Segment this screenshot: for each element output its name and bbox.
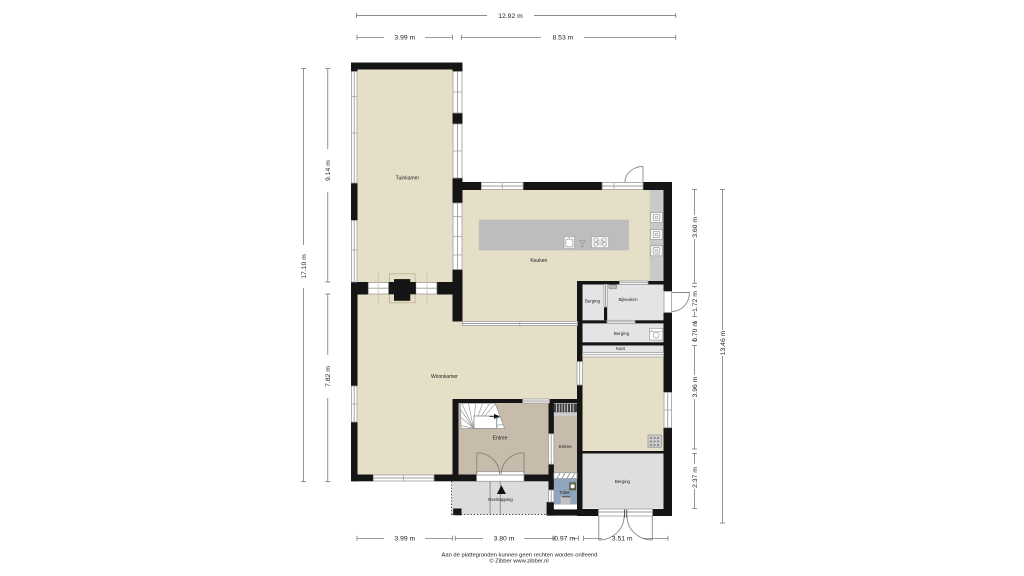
svg-text:Berging: Berging xyxy=(615,479,631,484)
svg-text:8.53 m: 8.53 m xyxy=(553,35,574,42)
svg-text:3.60 m: 3.60 m xyxy=(692,217,699,238)
svg-text:Berging: Berging xyxy=(585,299,601,304)
svg-text:3.51 m: 3.51 m xyxy=(612,536,633,543)
svg-text:7.82 m: 7.82 m xyxy=(325,366,332,387)
svg-text:2.37 m: 2.37 m xyxy=(692,467,699,488)
svg-text:3.99 m: 3.99 m xyxy=(394,35,415,42)
svg-text:Aan de plattegronden kunnen ge: Aan de plattegronden kunnen geen rechten… xyxy=(442,552,598,558)
svg-text:0.97 m: 0.97 m xyxy=(554,536,575,543)
svg-text:© Zibber www.zibber.nl: © Zibber www.zibber.nl xyxy=(489,558,548,565)
svg-text:Woonkamer: Woonkamer xyxy=(431,374,458,380)
svg-text:1.72 m: 1.72 m xyxy=(692,291,699,312)
svg-text:13.46 m: 13.46 m xyxy=(720,330,727,355)
svg-text:3.99 m: 3.99 m xyxy=(394,536,415,543)
svg-text:3.96 m: 3.96 m xyxy=(692,376,699,397)
svg-text:Bijkeuken: Bijkeuken xyxy=(618,297,638,302)
svg-text:0.70 m: 0.70 m xyxy=(692,321,699,342)
svg-text:Entree: Entree xyxy=(559,444,572,449)
svg-text:9.14 m: 9.14 m xyxy=(325,160,332,181)
svg-text:Keuken: Keuken xyxy=(530,258,547,264)
svg-text:Kast: Kast xyxy=(616,346,626,351)
svg-text:17.10 m: 17.10 m xyxy=(301,254,308,279)
svg-text:Entree: Entree xyxy=(493,435,508,441)
svg-text:Tuinkamer: Tuinkamer xyxy=(396,175,420,181)
svg-text:Toilet: Toilet xyxy=(559,490,570,495)
svg-text:Berging: Berging xyxy=(614,331,630,336)
svg-text:3.80 m: 3.80 m xyxy=(494,536,515,543)
svg-text:12.92 m: 12.92 m xyxy=(498,13,523,20)
svg-text:Overkapping: Overkapping xyxy=(488,497,513,502)
